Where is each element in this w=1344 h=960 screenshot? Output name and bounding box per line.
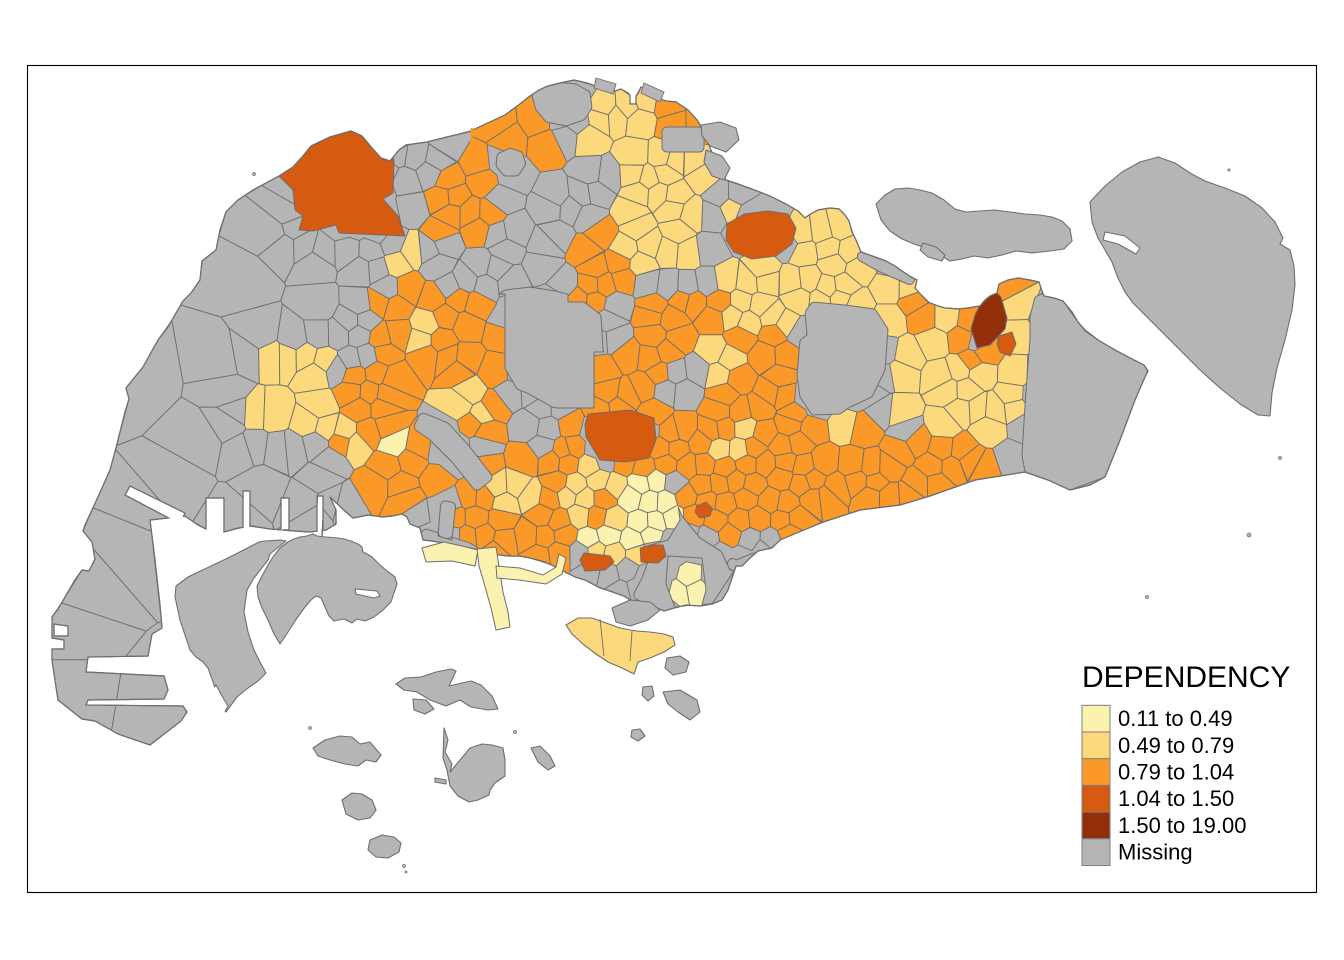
svg-text:Missing: Missing <box>1118 840 1193 865</box>
svg-text:0.79 to 1.04: 0.79 to 1.04 <box>1118 760 1234 785</box>
svg-text:DEPENDENCY: DEPENDENCY <box>1082 661 1290 694</box>
svg-text:0.49 to 0.79: 0.49 to 0.79 <box>1118 733 1234 758</box>
svg-text:1.04 to 1.50: 1.04 to 1.50 <box>1118 786 1234 811</box>
svg-text:0.11 to 0.49: 0.11 to 0.49 <box>1118 706 1233 731</box>
svg-text:1.50 to 19.00: 1.50 to 19.00 <box>1118 813 1246 838</box>
